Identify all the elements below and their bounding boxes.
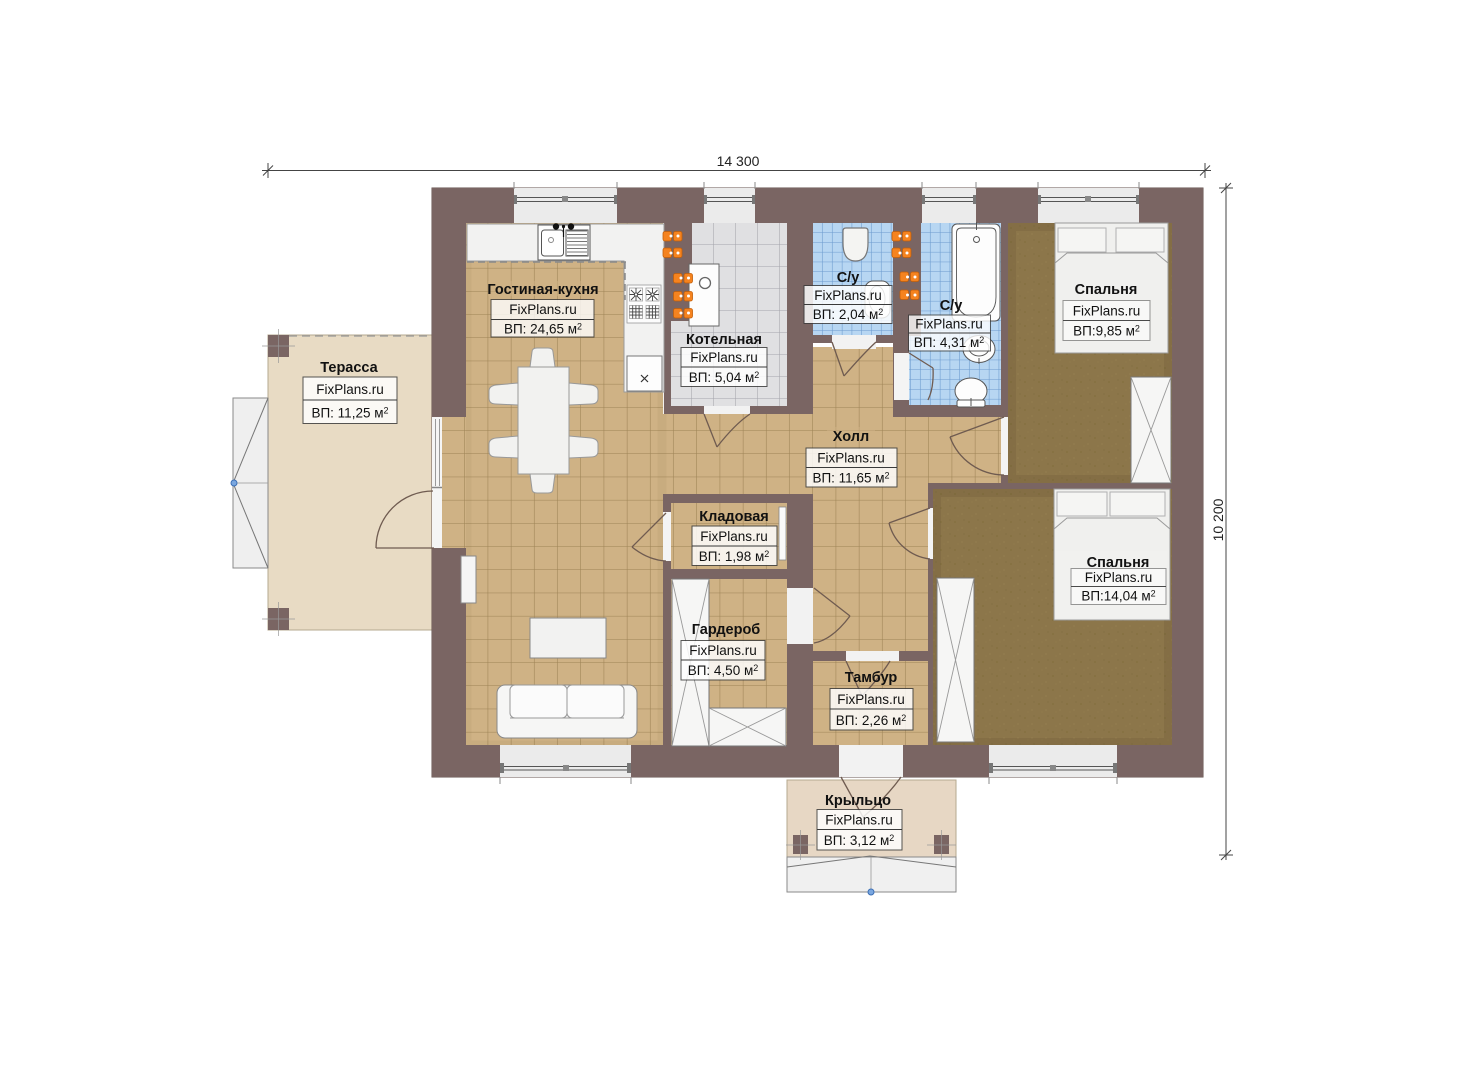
svg-text:FixPlans.ru: FixPlans.ru: [1073, 304, 1141, 319]
svg-text:ВП: 4,50 м2: ВП: 4,50 м2: [688, 663, 759, 678]
svg-text:FixPlans.ru: FixPlans.ru: [700, 529, 768, 544]
svg-text:Холл: Холл: [833, 429, 869, 445]
svg-text:14 300: 14 300: [717, 153, 760, 169]
svg-text:Спальня: Спальня: [1075, 282, 1138, 298]
svg-text:ВП: 11,65 м2: ВП: 11,65 м2: [812, 471, 889, 486]
svg-text:ВП: 2,26 м2: ВП: 2,26 м2: [836, 713, 907, 728]
svg-text:FixPlans.ru: FixPlans.ru: [690, 350, 758, 365]
svg-text:ВП: 24,65 м2: ВП: 24,65 м2: [504, 322, 582, 337]
svg-text:10 200: 10 200: [1210, 498, 1226, 541]
svg-text:FixPlans.ru: FixPlans.ru: [837, 692, 905, 707]
svg-text:ВП: 4,31 м2: ВП: 4,31 м2: [914, 335, 985, 350]
svg-text:С/у: С/у: [940, 298, 963, 314]
svg-text:Гардероб: Гардероб: [692, 622, 761, 638]
svg-text:FixPlans.ru: FixPlans.ru: [915, 317, 983, 332]
svg-text:Котельная: Котельная: [686, 332, 762, 348]
svg-text:FixPlans.ru: FixPlans.ru: [509, 302, 577, 317]
svg-text:ВП: 2,04 м2: ВП: 2,04 м2: [813, 307, 884, 322]
svg-text:Крыльцо: Крыльцо: [825, 793, 891, 809]
svg-text:ВП:14,04 м2: ВП:14,04 м2: [1081, 589, 1155, 604]
svg-text:ВП: 3,12 м2: ВП: 3,12 м2: [824, 833, 895, 848]
svg-text:Гостиная-кухня: Гостиная-кухня: [487, 282, 598, 298]
svg-text:Терасса: Терасса: [320, 360, 378, 376]
svg-text:ВП: 11,25 м2: ВП: 11,25 м2: [311, 406, 388, 421]
svg-text:FixPlans.ru: FixPlans.ru: [689, 643, 757, 658]
svg-text:FixPlans.ru: FixPlans.ru: [825, 813, 893, 828]
svg-text:Тамбур: Тамбур: [845, 670, 898, 686]
svg-text:FixPlans.ru: FixPlans.ru: [1085, 570, 1153, 585]
svg-text:FixPlans.ru: FixPlans.ru: [316, 382, 384, 397]
svg-text:ВП:9,85 м2: ВП:9,85 м2: [1073, 324, 1140, 339]
svg-text:Кладовая: Кладовая: [699, 509, 768, 525]
svg-text:ВП: 1,98 м2: ВП: 1,98 м2: [699, 549, 770, 564]
svg-text:С/у: С/у: [837, 270, 860, 286]
svg-text:FixPlans.ru: FixPlans.ru: [814, 288, 882, 303]
svg-text:ВП: 5,04 м2: ВП: 5,04 м2: [689, 370, 760, 385]
svg-text:FixPlans.ru: FixPlans.ru: [817, 451, 885, 466]
